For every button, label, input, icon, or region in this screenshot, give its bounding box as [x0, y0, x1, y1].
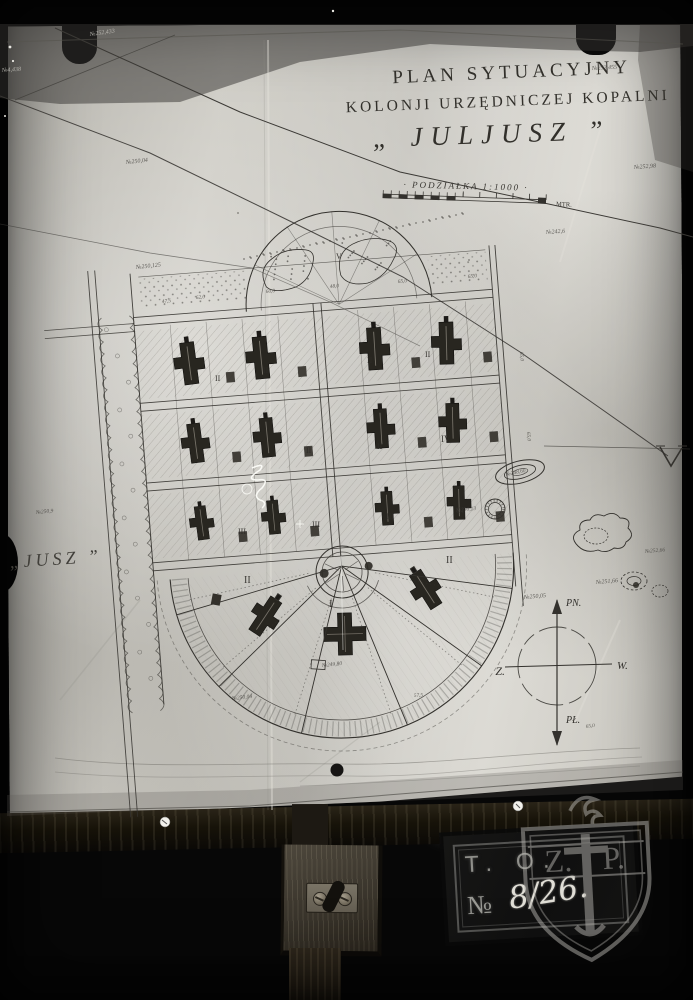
title-block: PLAN SYTUACYJNY KOLONJI URZĘDNICZEJ KOPA…	[346, 57, 671, 209]
compass-rose: PN. W. Z. PŁ.	[495, 598, 628, 746]
park-tree	[104, 328, 108, 332]
watermark-letter-p: P.	[602, 839, 626, 876]
dimension-label: 57,5	[414, 692, 424, 699]
bed-dot	[303, 265, 305, 267]
survey-dot	[362, 233, 364, 235]
plan-numeral: I	[329, 598, 333, 610]
survey-dot	[369, 232, 371, 234]
park-tree	[126, 380, 130, 384]
survey-dot	[269, 252, 271, 254]
survey-dot	[375, 230, 377, 232]
survey-dot	[335, 238, 337, 240]
plan-numeral: II	[377, 442, 383, 451]
bed-dot	[349, 254, 351, 256]
park-tree	[124, 570, 128, 574]
survey-dot	[315, 242, 317, 244]
survey-dot	[415, 222, 417, 224]
plan-title-line1: PLAN SYTUACYJNY	[392, 57, 632, 88]
street-line	[95, 270, 138, 816]
park-tree	[149, 676, 153, 680]
park-tree	[115, 354, 119, 358]
plan-numeral: II	[446, 555, 453, 566]
plan-numeral: II	[215, 374, 221, 383]
survey-dot	[249, 256, 251, 258]
bed-dot	[363, 260, 365, 262]
dimension-label: 60,0	[266, 288, 276, 295]
elevation-annotation: №250,04	[124, 157, 148, 166]
outbuilding	[424, 517, 433, 528]
dimension-label: 47,5	[162, 297, 172, 305]
outbuilding	[418, 437, 427, 448]
survey-dot	[262, 253, 264, 255]
dimension-label: 65,0	[525, 432, 532, 442]
elevation-annotation: №250,125	[135, 262, 162, 271]
bed-dot	[366, 256, 368, 258]
outbuilding	[483, 352, 492, 363]
street-line	[88, 271, 131, 817]
outbuilding	[226, 372, 235, 383]
bed-dot	[291, 268, 293, 270]
plan-numeral: III	[312, 520, 320, 529]
survey-dot	[237, 212, 239, 214]
compass-east-label: W.	[617, 660, 628, 672]
plan-numeral: IV	[441, 434, 451, 444]
bed-dot	[275, 263, 277, 265]
survey-dot	[296, 247, 298, 249]
bed-dot	[347, 257, 349, 259]
survey-dot	[309, 244, 311, 246]
survey-dot	[448, 215, 450, 217]
bed-dot	[387, 242, 389, 244]
bed-dot	[341, 242, 343, 244]
outbuilding	[412, 357, 421, 368]
survey-dot	[461, 212, 463, 214]
survey-dot	[282, 249, 284, 251]
bed-dot	[287, 260, 289, 262]
dimension-label: 48,0	[330, 282, 340, 290]
plan-title-line2: KOLONJI URZĘDNICZEJ KOPALNI	[346, 87, 671, 116]
elevation-annotation: №4,438	[1, 66, 22, 74]
plan-numeral: II	[263, 366, 269, 375]
survey-dot	[402, 225, 404, 227]
survey-dot	[243, 258, 245, 260]
elevation-annotation: №242,6	[545, 228, 566, 236]
park-tree	[138, 650, 142, 654]
survey-dot	[395, 226, 397, 228]
park-tree	[135, 596, 139, 600]
survey-dot	[256, 255, 258, 257]
plan-numeral: II	[367, 356, 373, 365]
survey-dot	[468, 259, 470, 261]
street-line	[44, 324, 134, 331]
plan-title-line3: „ JULJUSZ ”	[372, 115, 611, 153]
bed-dot	[290, 278, 292, 280]
survey-dot	[428, 219, 430, 221]
bed-dot	[270, 256, 272, 258]
scale-block	[415, 195, 423, 199]
elevation-annotation: №251,66	[595, 578, 619, 586]
dimension-label: 62,0	[196, 294, 206, 301]
watermark-letter-z: Z.	[544, 842, 573, 879]
bed-dot	[302, 270, 304, 272]
bed-dot	[287, 255, 289, 257]
compass-south-label: PŁ.	[565, 715, 580, 726]
survey-dot	[435, 218, 437, 220]
plan-numeral: II	[244, 575, 251, 586]
park-tree	[133, 542, 137, 546]
elevation-annotation: №252,455	[591, 64, 618, 72]
dimension-label: 65,0	[398, 278, 408, 285]
scale-block	[431, 196, 439, 200]
survey-dot	[276, 251, 278, 253]
plan-numeral: V	[336, 252, 342, 261]
park-tree	[146, 622, 150, 626]
dimension-label: 65,0	[468, 273, 478, 280]
bed-dot	[274, 268, 276, 270]
scale-unit-label: MTR.	[556, 201, 572, 209]
edge-label-juljusz: „JUSZ ”	[9, 546, 103, 572]
survey-dot	[302, 245, 304, 247]
shield-watermark: Z. P.	[521, 794, 653, 963]
survey-dot	[455, 214, 457, 216]
survey-dot	[382, 229, 384, 231]
dimension-label: 65,0	[585, 723, 595, 730]
survey-dot	[349, 236, 351, 238]
street-line	[45, 332, 135, 339]
plan-numeral: II	[306, 446, 312, 455]
compass-north-label: PN.	[565, 598, 581, 609]
plan-numeral: II	[425, 350, 431, 359]
park-tree	[129, 434, 133, 438]
bed-dot	[376, 266, 378, 268]
park-tree	[118, 408, 122, 412]
survey-dot	[329, 240, 331, 242]
bed-dot	[291, 273, 293, 275]
scale-block	[399, 195, 407, 199]
survey-dot	[289, 248, 291, 250]
outbuilding	[232, 452, 241, 463]
elevation-annotation: №252,98	[633, 163, 657, 171]
photo-negative: PLAN SYTUACYJNY KOLONJI URZĘDNICZEJ KOPA…	[0, 0, 693, 1000]
survey-dot	[342, 237, 344, 239]
elevation-annotation: №248,60	[504, 467, 527, 478]
elevation-annotation: №252,66	[644, 547, 666, 555]
punch-hole	[331, 764, 344, 777]
survey-dot	[422, 221, 424, 223]
bed-dot	[380, 262, 382, 264]
park-tree	[120, 462, 124, 466]
bed-dot	[353, 250, 355, 252]
bed-dot	[361, 263, 363, 265]
scale-block	[447, 196, 455, 200]
park-tree	[131, 488, 135, 492]
plan-numeral: III	[238, 527, 246, 536]
survey-dot	[408, 223, 410, 225]
elevation-annotation: №250,05	[523, 593, 547, 601]
survey-dot	[388, 227, 390, 229]
elevation-annotation: №250,9	[35, 508, 54, 516]
scale-block	[383, 194, 391, 198]
survey-dot	[322, 241, 324, 243]
bed-dot	[304, 260, 306, 262]
outbuilding	[490, 431, 499, 442]
compass-west-label: Z.	[495, 664, 505, 678]
bed-dot	[273, 278, 275, 280]
dimension-label: 65,0	[518, 352, 525, 362]
park-tree	[122, 516, 126, 520]
bed-dot	[374, 268, 376, 270]
survey-dot	[355, 234, 357, 236]
outbuilding	[298, 366, 307, 377]
bed-dot	[386, 245, 388, 247]
survey-dot	[441, 216, 443, 218]
bottom-fan-plaza	[156, 532, 541, 765]
plan-drawing: PLAN SYTUACYJNY KOLONJI URZĘDNICZEJ KOPA…	[0, 0, 693, 1000]
scale-label: · PODZIAŁKA 1:1000 ·	[403, 179, 528, 192]
plan-numeral: III	[386, 512, 394, 521]
